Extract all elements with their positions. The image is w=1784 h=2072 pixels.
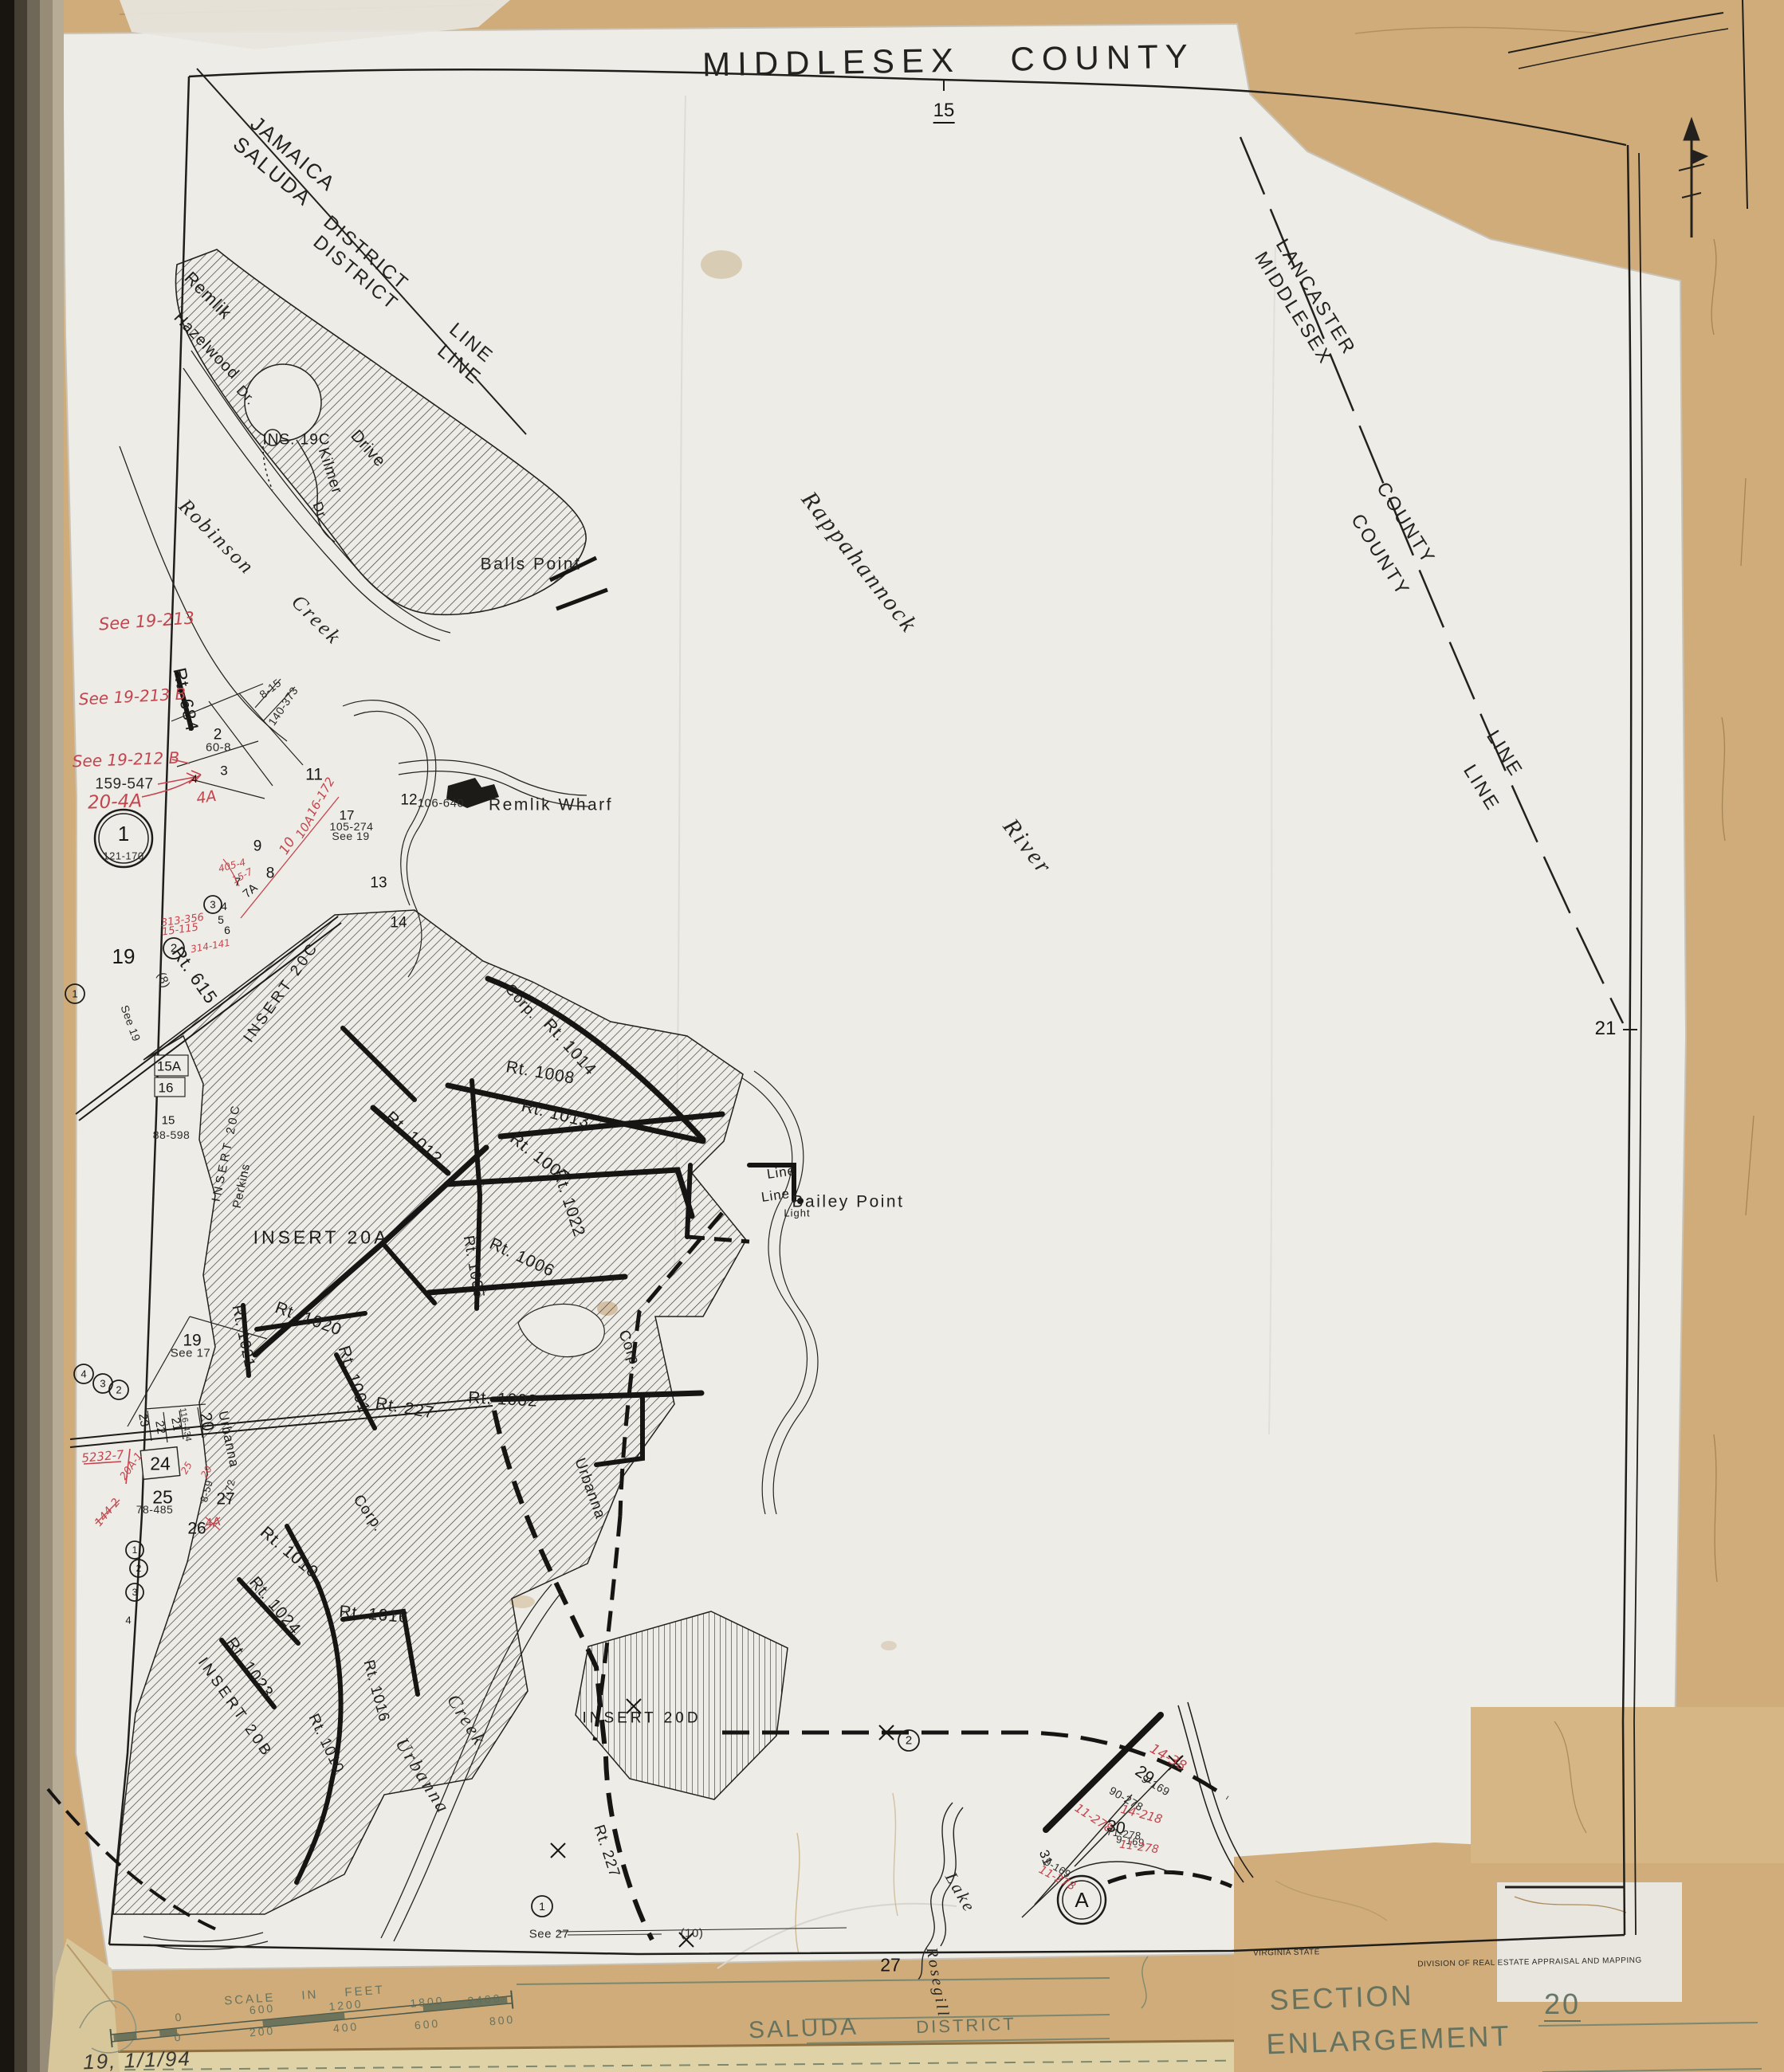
map-label: 159-547	[95, 777, 153, 792]
map-label: See 19-212 B	[72, 750, 179, 770]
map-label: 15	[933, 101, 955, 124]
map-label: Rt. 227	[374, 1395, 435, 1422]
map-label: 78-485	[136, 1504, 174, 1515]
map-label: Rt. 1010	[306, 1712, 347, 1776]
map-label: 23	[136, 1412, 151, 1427]
map-label: 6	[224, 924, 230, 936]
map-label: INSERT 20A	[253, 1229, 390, 1247]
map-label: 0	[175, 2011, 184, 2023]
map-label: Rt. 1024	[246, 1574, 304, 1638]
map-label: See 19-213	[98, 610, 195, 633]
map-label: 1200	[328, 1998, 363, 2012]
map-label: See 19	[332, 830, 369, 842]
map-label: Hazelwood	[171, 309, 242, 383]
map-label: 1	[132, 1545, 138, 1555]
map-label: Urbanna	[391, 1735, 453, 1818]
map-label: MIDDLESEX COUNTY	[702, 40, 1195, 82]
map-label: DIVISION OF REAL ESTATE APPRAISAL AND MA…	[1417, 1957, 1642, 1969]
map-label: SALUDA	[748, 2015, 859, 2043]
map-label: River	[999, 814, 1057, 879]
map-label: 19	[112, 946, 136, 967]
scanned-plat-map-page: MIDDLESEX COUNTY1521JAMAICASALUDADISTRIC…	[0, 0, 1784, 2072]
map-label: 1800	[410, 1995, 445, 2009]
map-label: 800	[489, 2014, 515, 2027]
map-label: 400	[332, 2021, 359, 2035]
map-label: 116-434	[178, 1407, 192, 1442]
map-label: SECTION	[1269, 1981, 1414, 2015]
map-label: Rt. 1022	[551, 1167, 588, 1239]
map-label: Corp.	[615, 1328, 643, 1372]
map-label: 60-8	[206, 742, 231, 754]
map-label: 3	[132, 1587, 138, 1597]
map-label: 4	[81, 1369, 86, 1379]
map-label: 200	[249, 2025, 275, 2039]
map-label: 24	[150, 1455, 171, 1474]
map-label: See 19	[119, 1003, 142, 1042]
map-label: See 27	[529, 1929, 570, 1941]
map-label: ENLARGEMENT	[1266, 2022, 1511, 2059]
map-label: 15A	[157, 1060, 181, 1073]
map-label: 8-15	[257, 677, 283, 700]
map-label: 7A	[241, 881, 260, 900]
map-label: Creek	[443, 1691, 489, 1749]
map-label: Rt. 1016	[339, 1603, 410, 1627]
map-label: Urbanna	[572, 1456, 607, 1521]
map-label: 106-640	[418, 798, 465, 810]
map-label: Lake	[942, 1870, 979, 1916]
map-label: Light	[784, 1208, 810, 1218]
map-label: 2400	[467, 1992, 502, 2007]
map-label: INSERT 20D	[582, 1711, 701, 1726]
map-label: Rt. 1021	[229, 1304, 257, 1369]
map-label: 20	[1544, 1990, 1581, 2022]
map-label: (8)	[155, 971, 172, 990]
map-label: DISTRICT	[916, 2015, 1016, 2036]
map-label: Rt. 1006	[487, 1235, 557, 1280]
map-label: 12	[400, 793, 417, 808]
map-label: 600	[249, 2003, 275, 2016]
map-label: LINE	[1483, 728, 1526, 780]
map-label: Rt. 1013	[520, 1097, 591, 1131]
map-label: 314-141	[190, 938, 230, 955]
map-label: A	[1075, 1890, 1088, 1910]
map-label: Remlik Wharf	[489, 797, 613, 814]
map-label: 0	[174, 2031, 183, 2043]
map-label: Rt. 227	[591, 1823, 622, 1880]
map-label: 26	[187, 1521, 206, 1537]
map-label: Rappahannock	[797, 488, 922, 638]
map-label: Dr.	[234, 383, 258, 407]
map-labels-layer: MIDDLESEX COUNTY1521JAMAICASALUDADISTRIC…	[0, 0, 1784, 2072]
map-label: Drive	[348, 427, 389, 470]
map-label: Dr.	[310, 500, 330, 523]
map-label: 14	[390, 916, 407, 931]
map-label: 8-59	[198, 1479, 214, 1504]
map-label: Line	[766, 1164, 796, 1181]
map-label: Rt. 1010	[257, 1524, 321, 1581]
map-label: 5232-7	[81, 1449, 124, 1465]
map-label: 8	[266, 866, 275, 881]
map-label: 9	[253, 839, 262, 854]
map-label: 3	[220, 764, 227, 778]
map-label: 3	[100, 1379, 105, 1389]
map-label: 13	[370, 876, 387, 891]
map-label: 22	[153, 1419, 167, 1434]
map-label: 20	[197, 1411, 217, 1433]
map-label: 4	[221, 901, 227, 912]
map-label: 1	[72, 989, 77, 999]
map-label: Line	[760, 1187, 791, 1204]
map-label: 10	[277, 835, 298, 857]
map-label: 20	[199, 1464, 214, 1479]
map-label: Rt. 1001	[336, 1344, 373, 1415]
map-label: Rt. 1016	[360, 1658, 391, 1724]
map-label: Rosegill	[923, 1946, 951, 2019]
map-label: 16	[159, 1081, 174, 1095]
map-label: Corp.	[502, 982, 541, 1022]
map-label: 2	[136, 1564, 142, 1573]
map-label: 19, 1/1/94	[83, 2048, 191, 2072]
map-label: Rt. 1005	[461, 1234, 487, 1300]
map-label: 21	[1595, 1019, 1617, 1038]
map-label: 4A	[195, 789, 217, 806]
map-label: 20-4A	[88, 792, 143, 812]
map-label: 27	[880, 1956, 901, 1975]
map-label: (10)	[681, 1928, 704, 1940]
map-label: Remlik	[181, 269, 234, 322]
map-label: See 17	[171, 1348, 211, 1360]
map-label: INS. 19C	[262, 433, 330, 448]
map-label: See 19-213 B	[78, 685, 186, 707]
map-label: Urbanna	[216, 1410, 242, 1469]
map-label: 11-278	[1118, 1839, 1159, 1856]
map-label: 10A	[294, 814, 316, 841]
map-label: 4	[191, 773, 198, 784]
map-label: 25	[179, 1460, 194, 1475]
map-label: 600	[414, 2018, 440, 2031]
map-label: 15	[162, 1115, 175, 1127]
map-label: 1	[539, 1901, 545, 1912]
map-label: Creek	[288, 591, 345, 649]
map-label: 4	[125, 1615, 131, 1626]
map-label: INSERT 20C	[241, 939, 321, 1045]
map-label: LINE	[1460, 762, 1503, 814]
map-label: 2	[906, 1735, 912, 1747]
map-label: 144-2	[93, 1497, 123, 1528]
map-label: Corp.	[350, 1492, 386, 1534]
map-label: VIRGINIA STATE	[1253, 1948, 1320, 1957]
map-label: 1	[118, 823, 129, 844]
map-label: Robinson	[175, 496, 259, 579]
map-label: Rt. 1008	[505, 1058, 576, 1087]
map-label: 2	[116, 1385, 121, 1395]
map-label: 11	[305, 767, 323, 783]
map-label: Kilmer	[316, 446, 345, 496]
map-label: 9-169	[1140, 1772, 1172, 1797]
map-label: Balls Point	[481, 556, 582, 573]
map-label: Rt. 1012	[383, 1109, 446, 1167]
map-label: 27	[216, 1491, 234, 1508]
map-label: Rt. 1020	[273, 1299, 344, 1339]
map-label: Rt. 1002	[468, 1389, 538, 1410]
map-label: 4A	[204, 1516, 222, 1530]
map-label: 5	[218, 914, 224, 925]
map-label: 3	[210, 900, 215, 910]
map-label: Perkins	[231, 1163, 253, 1210]
map-label: 88-598	[153, 1129, 191, 1140]
map-label: 121-170	[103, 851, 143, 861]
